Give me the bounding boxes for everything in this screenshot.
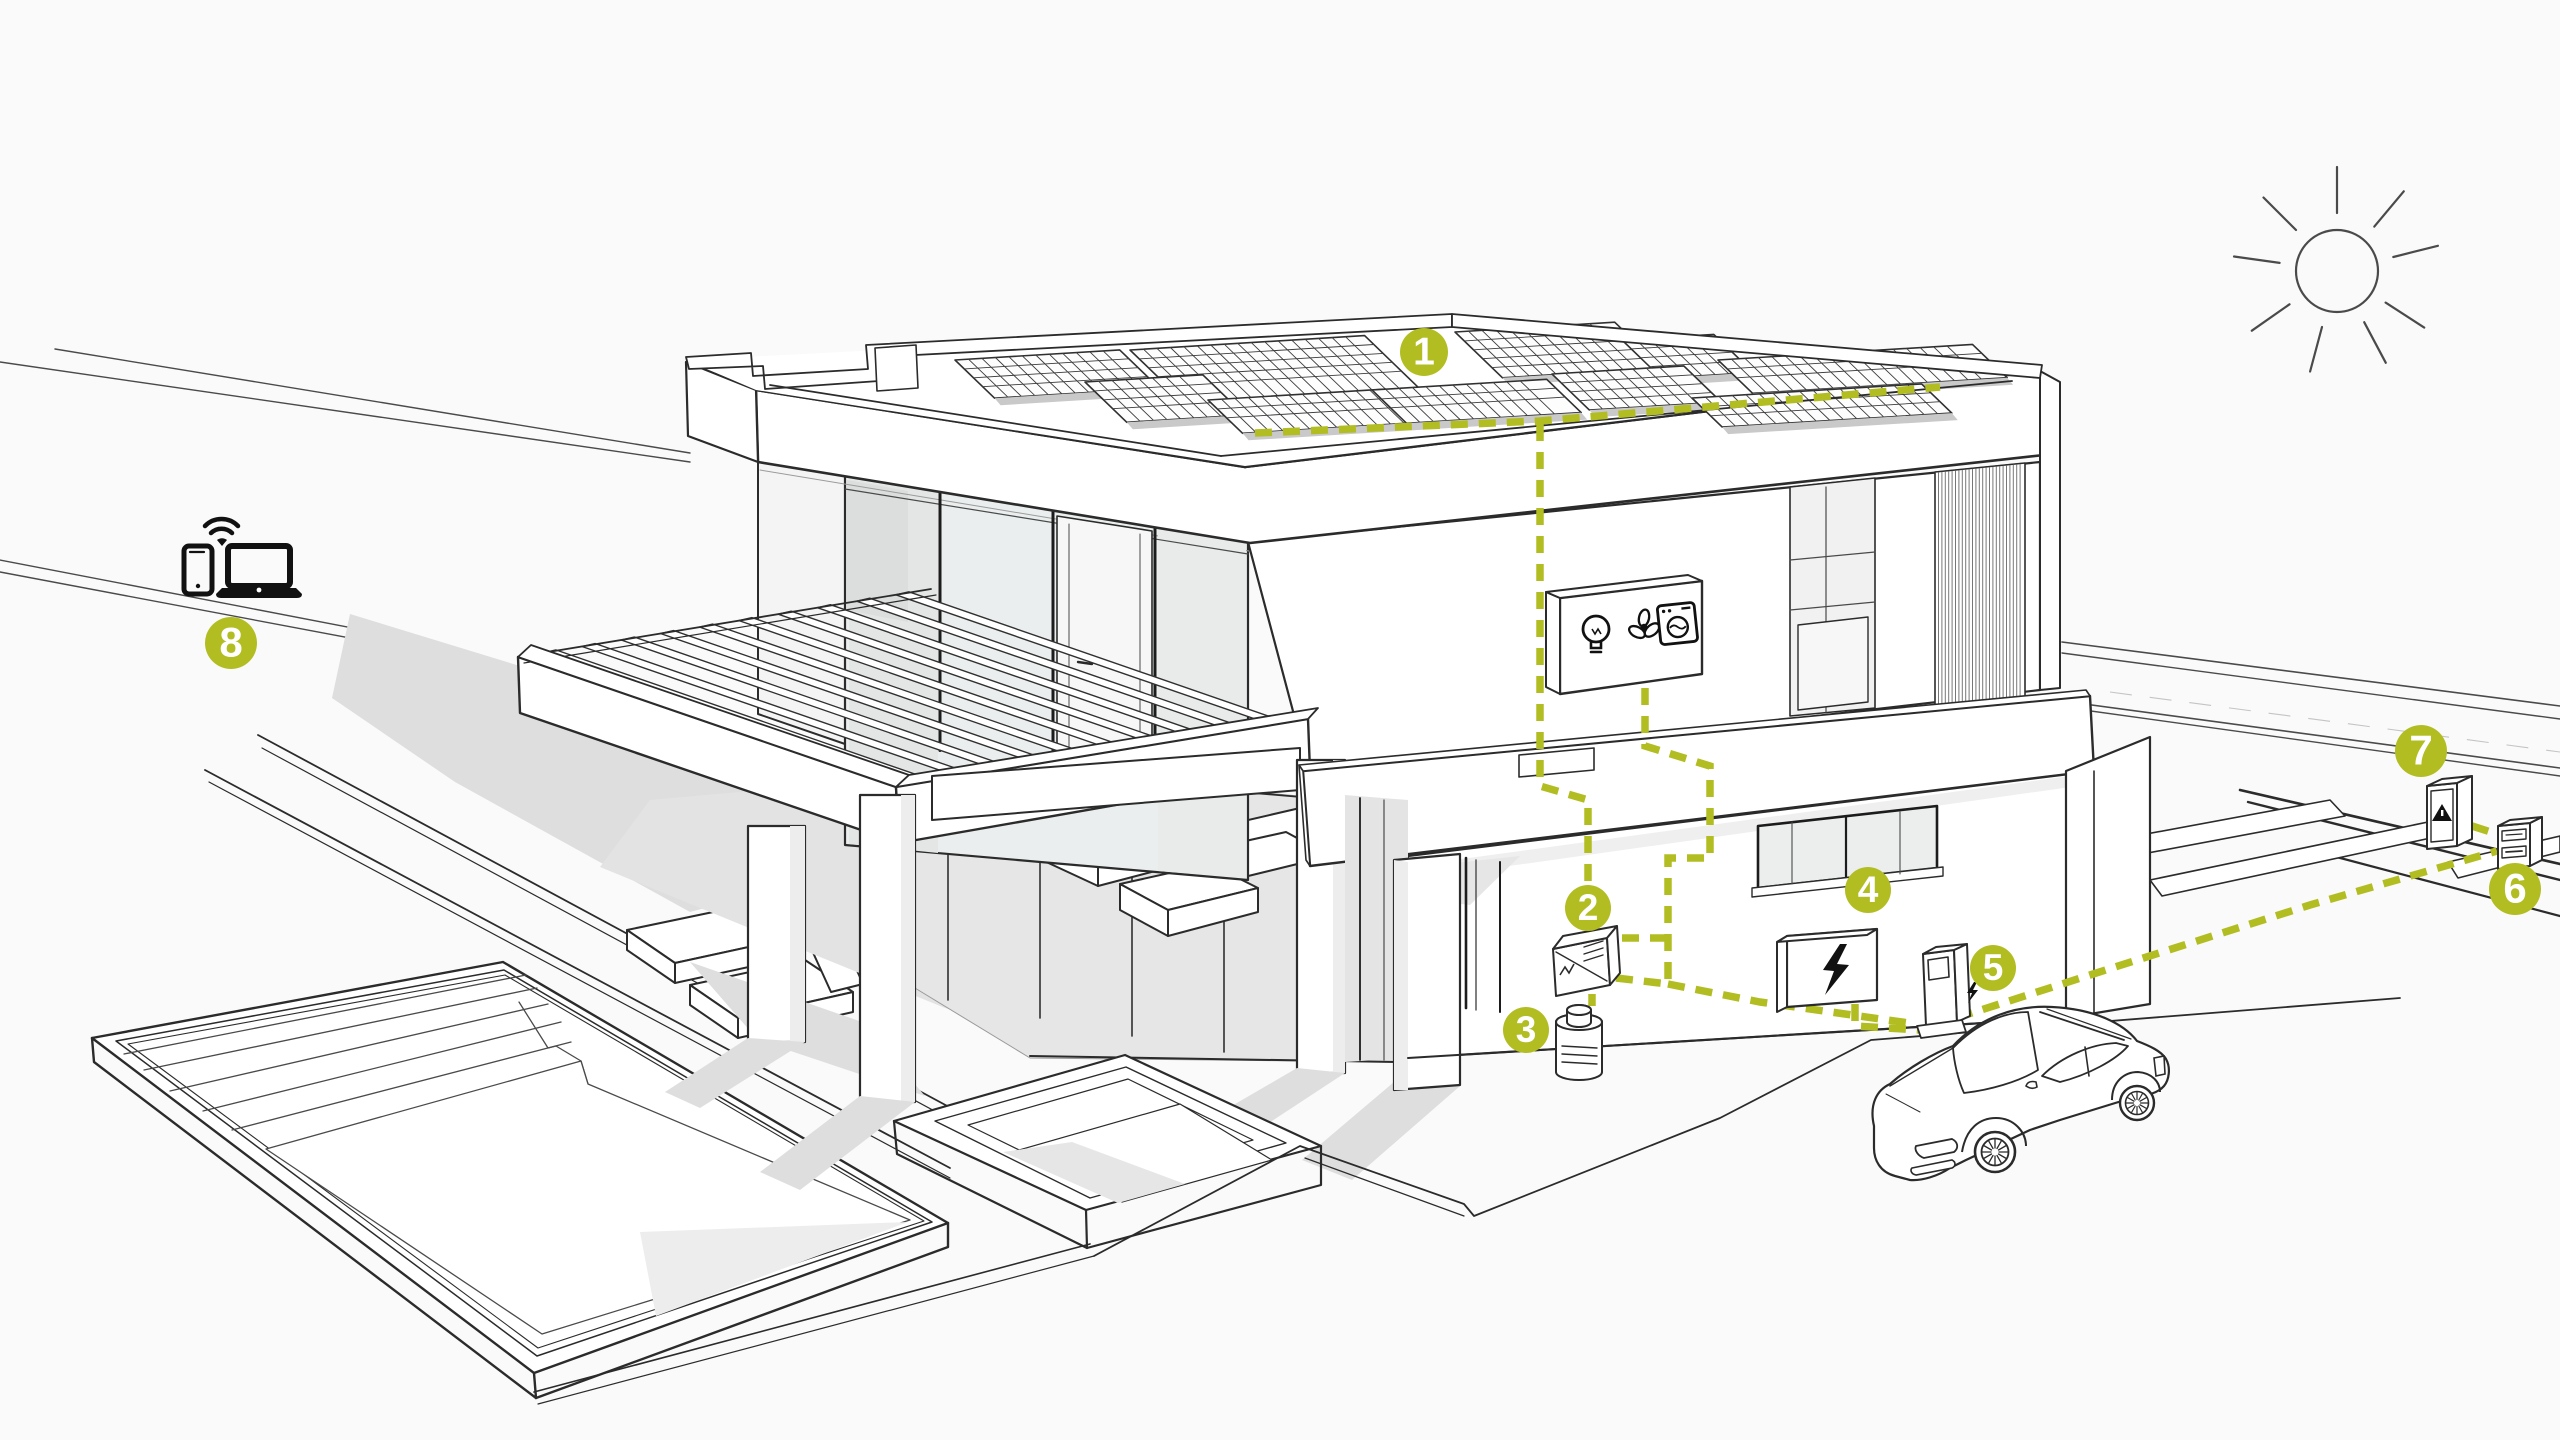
svg-text:1: 1 [1413, 330, 1435, 373]
svg-text:6: 6 [2503, 865, 2526, 912]
svg-text:4: 4 [1858, 869, 1879, 910]
svg-text:7: 7 [2409, 727, 2432, 774]
svg-text:3: 3 [1516, 1009, 1537, 1050]
svg-text:2: 2 [1578, 887, 1599, 928]
svg-text:5: 5 [1983, 947, 2004, 988]
svg-text:8: 8 [219, 619, 242, 666]
